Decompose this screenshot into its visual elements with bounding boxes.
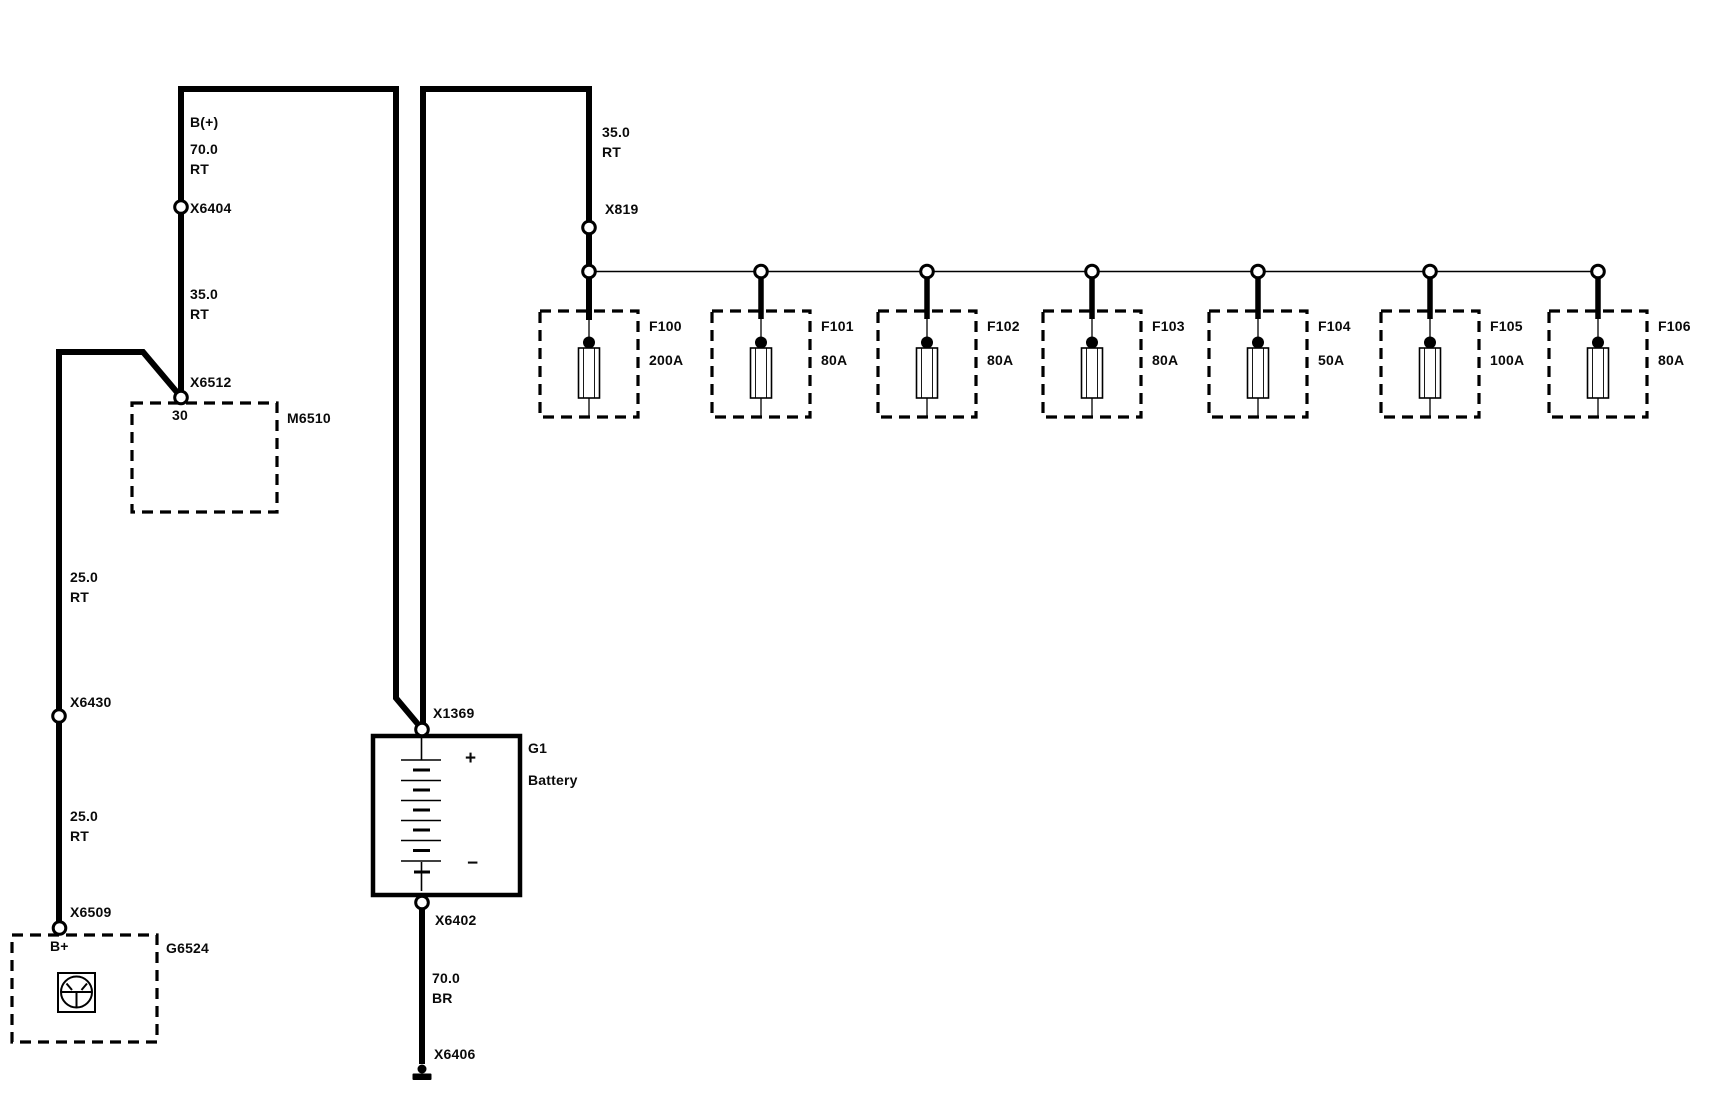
wire-color-label: RT	[70, 828, 89, 845]
ground-generator-icon	[58, 973, 95, 1012]
module-m6510-box	[132, 403, 277, 512]
splice-label-x819: X819	[605, 201, 639, 218]
wire-size-label: 25.0	[70, 569, 98, 586]
wire-color-label: RT	[190, 306, 209, 323]
battery-id-label-g1: G1	[528, 740, 547, 757]
wire-color-label: RT	[190, 161, 209, 178]
fuse-f103-group	[1043, 265, 1141, 417]
bus-junction	[1592, 265, 1605, 278]
wire-battery-to-fuse-feed	[423, 89, 589, 727]
wiring-diagram-canvas: B(+) 70.0 RT X6404 35.0 RT X6512 30 M651…	[0, 0, 1716, 1120]
fuse-f105-group	[1381, 265, 1479, 417]
connector-x1369	[416, 723, 429, 736]
ground-point-symbol	[413, 1065, 432, 1081]
connector-x6512	[175, 391, 188, 404]
bus-junction	[1252, 265, 1265, 278]
connector-x819	[583, 221, 596, 234]
fuse-contact	[583, 337, 595, 349]
wire-battery-to-module-m6510	[181, 89, 422, 729]
splice-label-x6430: X6430	[70, 694, 111, 711]
wire-size-label: 35.0	[190, 286, 218, 303]
fuse-contact	[755, 337, 767, 349]
splice-label-x6509: X6509	[70, 904, 111, 921]
fuse-name-label-f105: F105	[1490, 318, 1523, 335]
wire-size-label: 35.0	[602, 124, 630, 141]
fuse-name-label-f104: F104	[1318, 318, 1351, 335]
fuse-contact	[921, 337, 933, 349]
splice-label-x1369: X1369	[433, 705, 474, 722]
ground-id-label-g6524: G6524	[166, 940, 209, 957]
splice-label-x6404: X6404	[190, 200, 231, 217]
wire-color-label: RT	[602, 144, 621, 161]
battery-minus-sign: −	[467, 854, 478, 873]
terminal-label-b-plus: B+	[50, 938, 69, 955]
fuse-f106-group	[1549, 265, 1647, 417]
fuse-f102-group	[878, 265, 976, 417]
fuse-element	[917, 348, 938, 398]
battery-name-label: Battery	[528, 772, 578, 789]
bus-junction	[755, 265, 768, 278]
diagram-graphics	[0, 0, 1716, 1120]
module-pin-label: 30	[172, 407, 188, 424]
fuse-element	[1588, 348, 1609, 398]
bus-junction	[921, 265, 934, 278]
splice-label-x6512: X6512	[190, 374, 231, 391]
bus-junction	[1424, 265, 1437, 278]
fuse-element	[1248, 348, 1269, 398]
fuse-name-label-f101: F101	[821, 318, 854, 335]
fuse-rating-label-f101: 80A	[821, 352, 847, 369]
fuse-f104-group	[1209, 265, 1307, 417]
ground-g6524-box	[12, 935, 157, 1042]
connector-x6402	[416, 896, 429, 909]
fuse-rating-label-f102: 80A	[987, 352, 1013, 369]
fuse-f101-group	[712, 265, 810, 417]
fuse-contact	[1424, 337, 1436, 349]
fuse-element	[1420, 348, 1441, 398]
terminal-label-b-plus: B(+)	[190, 114, 218, 131]
battery-g1-group	[373, 736, 520, 895]
bus-junction	[1086, 265, 1099, 278]
ground-g6524-box-group	[12, 935, 157, 1042]
wire-color-label: RT	[70, 589, 89, 606]
fuse-name-label-f103: F103	[1152, 318, 1185, 335]
fuse-rating-label-f106: 80A	[1658, 352, 1684, 369]
battery-g1-box	[373, 736, 520, 895]
fuse-rating-label-f104: 50A	[1318, 352, 1344, 369]
bus-junction	[583, 265, 596, 278]
wire-size-label: 70.0	[432, 970, 460, 987]
fuse-f100-group	[540, 265, 638, 417]
wire-size-label: 70.0	[190, 141, 218, 158]
wire-color-label: BR	[432, 990, 453, 1007]
splice-label-x6402: X6402	[435, 912, 476, 929]
connector-x6509	[53, 922, 66, 935]
fuse-element	[579, 348, 600, 398]
fuse-name-label-f106: F106	[1658, 318, 1691, 335]
fuse-contact	[1252, 337, 1264, 349]
fuse-rating-label-f103: 80A	[1152, 352, 1178, 369]
fuse-element	[751, 348, 772, 398]
connector-x6404	[175, 201, 188, 214]
wire-size-label: 25.0	[70, 808, 98, 825]
splice-label-x6406: X6406	[434, 1046, 475, 1063]
fuse-contact	[1086, 337, 1098, 349]
fuse-element	[1082, 348, 1103, 398]
module-id-label-m6510: M6510	[287, 410, 331, 427]
connector-x6430	[53, 710, 66, 723]
fuse-rating-label-f100: 200A	[649, 352, 683, 369]
battery-plus-sign: +	[465, 749, 476, 768]
fuse-name-label-f100: F100	[649, 318, 682, 335]
fuse-rating-label-f105: 100A	[1490, 352, 1524, 369]
fuse-name-label-f102: F102	[987, 318, 1020, 335]
fuse-contact	[1592, 337, 1604, 349]
